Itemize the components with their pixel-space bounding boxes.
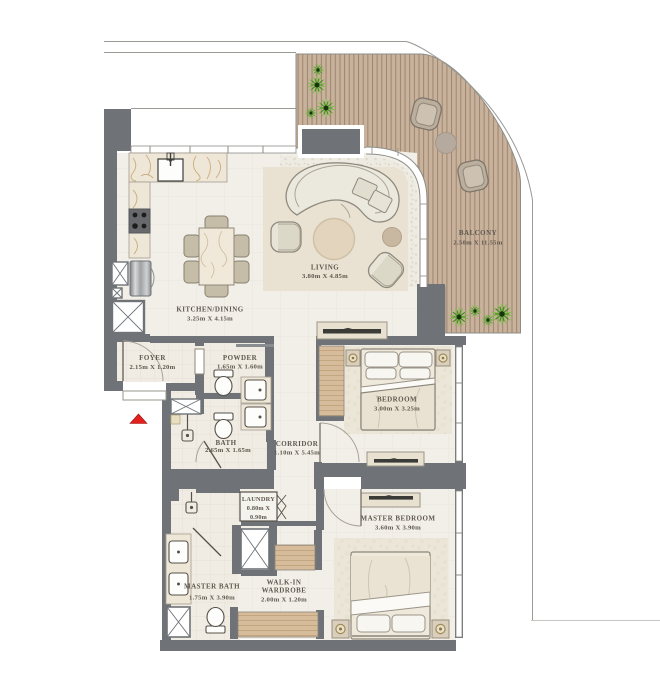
svg-text:KITCHEN/DINING: KITCHEN/DINING [176,306,243,314]
svg-text:0.90m: 0.90m [250,514,268,521]
svg-text:3.80m X 4.85m: 3.80m X 4.85m [302,273,348,280]
svg-text:3.00m X 3.25m: 3.00m X 3.25m [374,406,420,413]
svg-text:POWDER: POWDER [223,354,258,362]
svg-text:BATH: BATH [215,439,236,447]
svg-text:MASTER BEDROOM: MASTER BEDROOM [361,515,436,523]
svg-text:1.10m X 5.45m: 1.10m X 5.45m [274,450,320,457]
svg-text:MASTER BATH: MASTER BATH [184,583,240,591]
svg-text:2.00m X 1.20m: 2.00m X 1.20m [261,597,307,604]
svg-text:1.65m X 1.60m: 1.65m X 1.60m [217,364,263,371]
svg-text:BEDROOM: BEDROOM [377,396,417,404]
svg-text:WARDROBE: WARDROBE [262,587,307,595]
svg-text:3.60m X 3.90m: 3.60m X 3.90m [375,525,421,532]
svg-text:2.50m X 11.55m: 2.50m X 11.55m [453,240,502,247]
svg-text:BALCONY: BALCONY [459,229,497,237]
svg-text:LIVING: LIVING [311,264,339,272]
svg-text:CORRIDOR: CORRIDOR [276,440,319,448]
svg-text:FOYER: FOYER [139,354,166,362]
svg-text:WALK-IN: WALK-IN [267,579,302,587]
svg-text:2.15m X 1.20m: 2.15m X 1.20m [130,364,176,371]
svg-text:LAUNDRY: LAUNDRY [242,496,275,503]
svg-text:1.75m X 3.90m: 1.75m X 3.90m [189,595,235,602]
svg-text:0.80m X: 0.80m X [247,505,271,512]
svg-text:2.65m X 1.65m: 2.65m X 1.65m [205,447,251,454]
svg-text:3.25m X 4.15m: 3.25m X 4.15m [187,316,233,323]
